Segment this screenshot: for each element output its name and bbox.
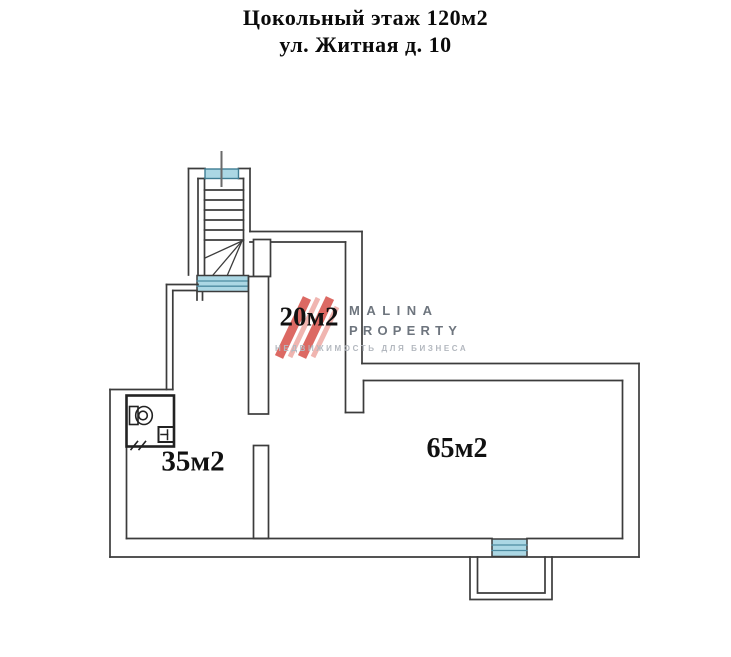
plan-title-line2: ул. Житная д. 10 (0, 31, 731, 58)
duct-box (254, 240, 271, 277)
pillar-wall (249, 277, 269, 415)
basement-window (492, 539, 527, 557)
stair-window (205, 152, 239, 186)
floor-plan-page: MALINA PROPERTY НЕДВИЖИМОСТЬ ДЛЯ БИЗНЕСА… (0, 0, 731, 657)
plan-title: Цокольный этаж 120м2 ул. Житная д. 10 (0, 4, 731, 58)
stair-treads (205, 190, 244, 240)
room-label-left-room: 35м2 (161, 446, 224, 479)
stair-winders (205, 241, 242, 276)
stair-door (197, 276, 249, 292)
toilet-icon (130, 407, 153, 425)
lower-partition-wall (254, 446, 269, 539)
room-label-main-room: 65м2 (426, 433, 487, 465)
room-label-corridor: 20м2 (280, 302, 339, 333)
plan-title-line1: Цокольный этаж 120м2 (0, 4, 731, 31)
floor-plan-svg (0, 0, 731, 657)
sink-icon (159, 427, 175, 442)
entrance-vestibule (470, 557, 552, 600)
toilet-room (127, 396, 175, 450)
